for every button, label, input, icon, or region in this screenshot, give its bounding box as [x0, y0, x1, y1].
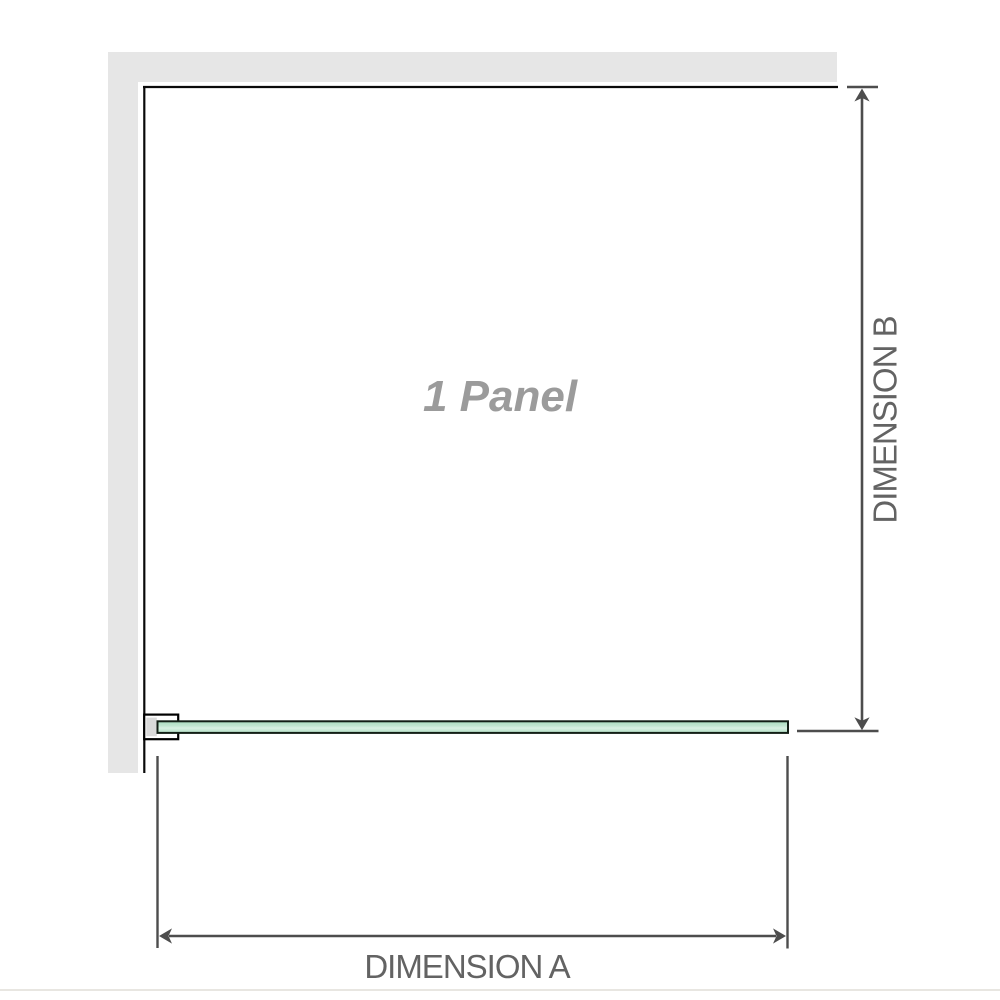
svg-text:DIMENSION A: DIMENSION A	[364, 948, 570, 985]
svg-text:DIMENSION B: DIMENSION B	[867, 316, 904, 523]
svg-text:1 Panel: 1 Panel	[423, 372, 578, 421]
